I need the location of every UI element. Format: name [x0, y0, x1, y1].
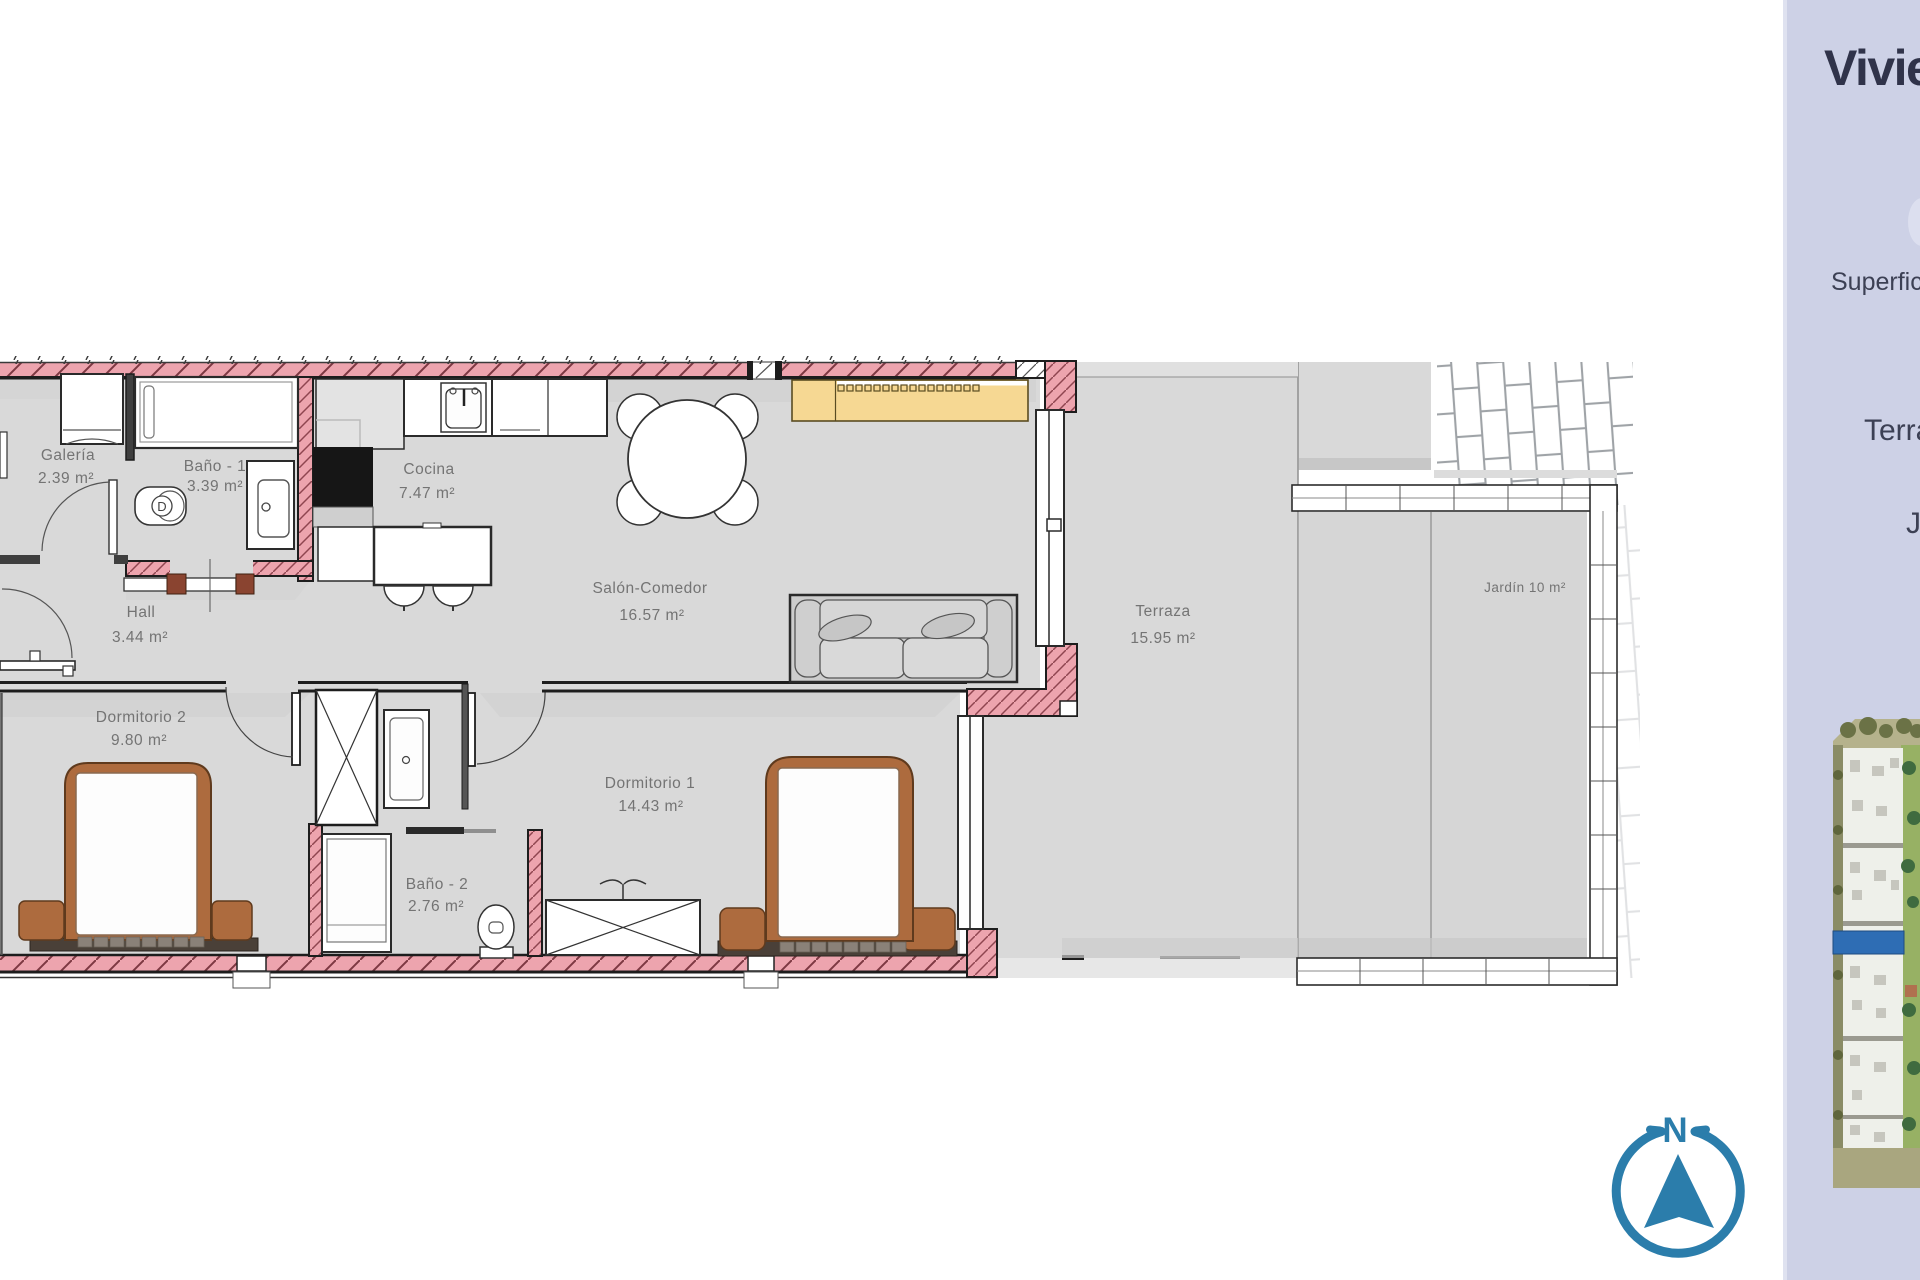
svg-text:Galería: Galería [41, 447, 95, 464]
svg-text:3.39 m²: 3.39 m² [187, 478, 243, 495]
svg-text:2.39 m²: 2.39 m² [38, 470, 94, 487]
svg-text:N: N [1662, 1111, 1687, 1150]
svg-text:Jardín 10 m²: Jardín 10 m² [1484, 580, 1566, 595]
svg-text:Terraza: Terraza [1864, 414, 1920, 447]
svg-text:D: D [157, 499, 166, 514]
svg-text:7.47 m²: 7.47 m² [399, 485, 455, 502]
svg-text:Dormitorio 2: Dormitorio 2 [96, 709, 186, 726]
svg-text:2.76 m²: 2.76 m² [408, 898, 464, 915]
svg-text:Baño - 2: Baño - 2 [406, 876, 469, 893]
svg-text:15.95 m²: 15.95 m² [1130, 630, 1195, 647]
svg-text:Baño - 1: Baño - 1 [184, 458, 247, 475]
svg-text:14.43 m²: 14.43 m² [618, 798, 683, 815]
svg-text:Terraza: Terraza [1135, 603, 1190, 620]
svg-text:Superficie: Superficie [1831, 268, 1920, 296]
svg-text:Dormitorio 1: Dormitorio 1 [605, 775, 695, 792]
svg-text:Vivien: Vivien [1824, 40, 1920, 96]
svg-text:16.57 m²: 16.57 m² [619, 607, 684, 624]
svg-text:Cocina: Cocina [403, 461, 454, 478]
svg-text:3.44 m²: 3.44 m² [112, 629, 168, 646]
svg-text:9.80 m²: 9.80 m² [111, 732, 167, 749]
svg-text:Hall: Hall [127, 604, 156, 621]
svg-text:Salón-Comedor: Salón-Comedor [592, 580, 707, 597]
svg-text:Jardín: Jardín [1906, 507, 1920, 540]
